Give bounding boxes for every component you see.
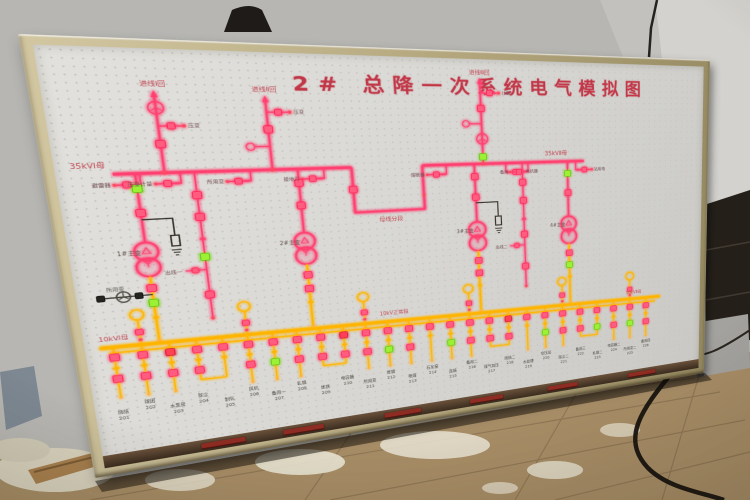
indicator-dot	[138, 338, 143, 341]
indicator-dot	[225, 180, 229, 183]
motor-symbol	[237, 301, 250, 312]
bus-line	[476, 202, 498, 218]
breaker-led	[269, 338, 278, 345]
motor-symbol	[557, 277, 566, 286]
feeder-code: 214	[429, 370, 437, 375]
feeder-code: 224	[611, 348, 617, 353]
breaker-led	[155, 140, 166, 148]
breaker-led	[467, 319, 474, 326]
breaker-led	[192, 346, 202, 354]
equipment-label: 出线二	[495, 244, 508, 250]
breaker-led	[317, 334, 325, 341]
bus-tie-label: 母线分段	[379, 215, 404, 223]
breaker-led	[522, 263, 528, 269]
breaker-led	[304, 271, 313, 278]
breaker-led	[318, 353, 326, 360]
feeder-code: 211	[366, 384, 375, 389]
disconnect-tick	[200, 238, 206, 240]
feeder-label: 电容器二	[607, 342, 620, 348]
indicator-dot	[629, 336, 631, 338]
indicator-dot	[470, 355, 472, 357]
bus-line	[201, 376, 227, 380]
feeder-code: 201	[119, 415, 130, 421]
breaker-led	[168, 369, 178, 377]
feeder-label: 除尘	[198, 392, 209, 399]
breaker-led	[163, 180, 172, 186]
indicator-dot	[525, 285, 528, 288]
feeder-label: 煤气加压	[484, 363, 499, 370]
breaker-led	[340, 331, 348, 338]
motor-symbol	[463, 284, 473, 294]
feeder-label: 球团	[144, 398, 156, 405]
feeder-code: 207	[275, 396, 285, 402]
breaker-led	[564, 170, 570, 176]
photo-of-mimic-board: 2# 总降一次系统电气模拟图 母线分段35kVⅠ母35kVⅡ母进线Ⅰ回压变进线Ⅱ…	[0, 0, 750, 500]
breaker-led	[594, 324, 600, 330]
bus-line	[567, 161, 568, 216]
breaker-led	[271, 358, 280, 365]
breaker-led	[149, 299, 159, 307]
nameplate	[201, 437, 246, 450]
ner-resistor	[495, 216, 501, 225]
equipment-label: 压变计量	[127, 180, 153, 188]
feeder-label: 轧钢	[297, 380, 307, 386]
disconnect-tick	[272, 351, 277, 353]
breaker-led	[447, 321, 454, 328]
indicator-dot	[561, 300, 564, 303]
feeder-label: 连铸	[449, 368, 457, 374]
disconnect-tick	[543, 323, 547, 325]
disconnect-tick	[428, 335, 432, 337]
indicator-dot	[363, 318, 366, 321]
feeder-label: 轧钢二	[593, 350, 603, 356]
disconnect-tick	[468, 330, 472, 332]
breaker-led	[109, 353, 120, 361]
indicator-dot	[497, 92, 500, 95]
breaker-led	[195, 213, 205, 221]
breaker-led	[167, 123, 176, 129]
indicator-dot	[182, 124, 187, 127]
breaker-led	[349, 186, 357, 193]
bus-line	[491, 344, 510, 347]
breaker-led	[141, 372, 151, 380]
indicator-dot	[245, 328, 249, 331]
breaker-led	[567, 262, 573, 268]
disconnect-tick	[244, 180, 250, 182]
indicator-dot	[451, 357, 454, 359]
feeder-label: 除尘二	[558, 354, 568, 360]
breaker-led	[475, 257, 482, 264]
breaker-led	[467, 337, 474, 344]
breaker-led	[293, 336, 302, 343]
disconnect-tick	[364, 341, 369, 343]
transformer-symbol	[295, 246, 317, 264]
breaker-led	[516, 169, 521, 174]
indicator-dot	[545, 346, 547, 348]
indicator-dot	[431, 359, 434, 361]
feeder-label: 水处理	[523, 358, 534, 364]
breaker-led	[96, 296, 105, 303]
indicator-dot	[422, 193, 425, 196]
breaker-led	[246, 361, 255, 369]
bus-line	[109, 291, 655, 366]
breaker-led	[486, 317, 493, 324]
feeder-label: 水泵房	[170, 402, 186, 409]
feeder-code: 210	[344, 380, 353, 385]
breaker-led	[487, 90, 493, 95]
pt-circle	[246, 143, 256, 150]
breaker-led	[566, 250, 572, 256]
nameplate	[548, 382, 578, 392]
equipment-label: 压变	[293, 109, 305, 115]
breaker-led	[577, 325, 583, 331]
equipment-label: 熔断器	[411, 172, 426, 178]
transformer-symbol	[135, 257, 162, 277]
breaker-led	[200, 253, 210, 261]
breaker-led	[309, 176, 316, 182]
breaker-led	[147, 284, 157, 292]
breaker-led	[113, 375, 124, 383]
indicator-dot	[645, 334, 647, 336]
breaker-led	[405, 325, 412, 332]
breaker-led	[235, 178, 243, 184]
feeder-label: 备用三	[576, 346, 586, 352]
indicator-dot	[426, 173, 429, 176]
breaker-led	[611, 322, 616, 328]
incoming-line-label: 进线Ⅲ回	[469, 69, 490, 76]
ground-symbol	[172, 249, 182, 250]
breaker-led	[433, 172, 439, 177]
disconnect-tick	[568, 275, 572, 277]
feeder-label: 制氧	[224, 396, 235, 402]
feeder-code: 205	[225, 402, 235, 408]
breaker-led	[643, 302, 648, 308]
indicator-dot	[410, 362, 413, 364]
breaker-led	[192, 268, 199, 274]
breaker-led	[244, 341, 253, 349]
bus-label: 10kVⅠ母	[98, 333, 129, 343]
bus-line	[323, 363, 346, 366]
disconnect-tick	[595, 317, 599, 319]
breaker-led	[560, 310, 566, 316]
feeder-label: 烧结	[117, 409, 129, 416]
feeder-label: 备用四	[641, 338, 650, 343]
nameplate	[384, 408, 421, 419]
feeder-code: 202	[145, 405, 156, 411]
bus-line	[97, 295, 153, 300]
breaker-led	[192, 191, 202, 199]
feeder-code: 206	[250, 392, 260, 398]
breaker-led	[487, 335, 494, 342]
feeder-code: 219	[525, 364, 532, 369]
feeder-label: 炼铁	[321, 384, 330, 390]
breaker-led	[448, 339, 455, 346]
breaker-led	[472, 194, 479, 201]
feeder-code: 226	[643, 344, 649, 348]
equipment-label: 电抗器	[526, 168, 539, 174]
equipment-label: 所用变	[207, 178, 225, 185]
bus-label: 35kVⅠ母	[69, 162, 106, 171]
nameplate	[470, 394, 503, 405]
breaker-led	[542, 312, 548, 318]
indicator-dot	[591, 168, 593, 170]
feeder-label: 备用二	[466, 359, 478, 365]
feeder-label: 烧结二	[504, 354, 515, 360]
breaker-led	[242, 320, 250, 326]
feeder-code: 223	[594, 355, 600, 360]
disconnect-tick	[561, 321, 565, 323]
bus-line	[142, 218, 175, 237]
feeder-code: 209	[322, 390, 331, 396]
pt-circle	[462, 121, 469, 128]
breaker-led	[627, 320, 632, 326]
indicator-dot	[509, 171, 512, 174]
breaker-led	[264, 126, 273, 133]
indicator-dot	[613, 338, 615, 340]
breaker-led	[362, 329, 370, 336]
disconnect-tick	[319, 346, 324, 348]
breaker-led	[542, 329, 548, 335]
disconnect-tick	[644, 312, 647, 314]
indicator-dot	[300, 375, 303, 378]
breaker-led	[582, 167, 587, 172]
ner-resistor	[171, 235, 181, 246]
breaker-led	[135, 329, 144, 336]
transformer-symbol	[469, 235, 487, 252]
indicator-dot	[276, 378, 279, 381]
breaker-led	[611, 305, 617, 311]
feeder-code: 212	[387, 375, 395, 380]
breaker-led	[364, 348, 372, 355]
breaker-led	[627, 304, 632, 310]
feeder-code: 203	[174, 409, 185, 415]
feeder-label: 电容器	[341, 374, 355, 381]
disconnect-tick	[478, 284, 482, 286]
feeder-code: 216	[469, 365, 477, 370]
equipment-label: 避雷器	[91, 182, 112, 189]
bus-label: 10kV正常段	[380, 308, 410, 317]
breaker-led	[407, 344, 414, 351]
equipment-label: 接地刀	[283, 176, 299, 183]
indicator-dot	[251, 381, 254, 384]
indicator-dot	[562, 344, 564, 346]
indicator-dot	[527, 348, 529, 350]
disconnect-tick	[578, 319, 582, 321]
disconnect-tick	[141, 364, 147, 367]
transformer-symbol	[561, 228, 576, 244]
disconnect-tick	[386, 339, 391, 341]
incoming-line-label: 进线Ⅰ回	[138, 79, 165, 87]
nameplate	[283, 424, 324, 436]
disconnect-tick	[296, 348, 301, 350]
breaker-led	[361, 310, 367, 316]
transformer-label: 4#主变	[550, 222, 566, 228]
indicator-dot	[481, 162, 485, 166]
disconnect-tick	[247, 353, 252, 355]
indicator-dot	[112, 184, 116, 187]
bus-label: 35kVⅡ母	[545, 150, 568, 157]
breaker-led	[305, 285, 314, 292]
equipment-label: 备用	[500, 169, 509, 175]
feeder-label: 石灰窑	[426, 364, 438, 370]
breaker-led	[560, 327, 566, 333]
feeder-code: 225	[627, 351, 633, 355]
breaker-led	[477, 105, 484, 112]
indicator-dot	[174, 390, 178, 393]
breaker-led	[295, 355, 304, 362]
incoming-line-label: 进线Ⅱ回	[251, 85, 277, 93]
lit-circuits	[54, 69, 662, 413]
breaker-led	[138, 351, 148, 359]
breaker-led	[195, 366, 205, 374]
bus-line	[474, 164, 477, 222]
breaker-led	[565, 190, 571, 196]
breaker-led	[471, 173, 478, 180]
breaker-led	[560, 293, 565, 298]
breaker-led	[135, 209, 146, 217]
breaker-led	[274, 109, 282, 115]
breaker-led	[480, 154, 487, 160]
indicator-dot	[154, 182, 158, 185]
breaker-led	[384, 327, 392, 334]
bus-line	[580, 334, 597, 337]
breaker-led	[135, 292, 144, 298]
disconnect-tick	[507, 326, 511, 328]
feeder-label: 所用变	[363, 378, 376, 385]
breaker-led	[218, 343, 227, 351]
disconnect-tick	[488, 328, 492, 330]
nameplate	[628, 369, 655, 378]
indicator-dot	[119, 396, 123, 399]
breaker-led	[165, 348, 175, 356]
motor-symbol	[357, 292, 369, 302]
feeder-code: 221	[560, 360, 567, 365]
breaker-led	[521, 231, 527, 237]
indicator-dot	[270, 168, 275, 172]
disconnect-tick	[441, 173, 446, 175]
indicator-dot	[368, 367, 371, 370]
bus-line	[113, 167, 352, 174]
breaker-led	[297, 202, 306, 209]
disconnect-tick	[196, 358, 202, 360]
equipment-label: 计量	[502, 90, 511, 96]
feeder-label: 风机	[249, 386, 259, 392]
feeder-label: 喷煤	[408, 373, 416, 379]
feeder-label: 备用一	[271, 389, 286, 396]
motor-symbol	[129, 309, 144, 321]
feeder-code: 218	[507, 360, 514, 365]
disconnect-tick	[318, 177, 323, 179]
disconnect-tick	[628, 314, 631, 316]
breaker-led	[506, 333, 512, 339]
disconnect-tick	[612, 316, 615, 318]
indicator-dot	[288, 111, 292, 114]
indicator-dot	[162, 171, 168, 175]
breaker-led	[426, 323, 433, 330]
disconnect-tick	[522, 218, 526, 220]
feeder-code: 213	[409, 379, 417, 384]
breaker-led	[205, 291, 215, 299]
bus-line	[265, 100, 272, 170]
disconnect-tick	[407, 337, 412, 339]
indicator-dot	[147, 393, 151, 396]
bus-line	[480, 82, 484, 164]
equipment-label: 站用电	[594, 166, 605, 172]
breaker-led	[385, 346, 393, 353]
motor-symbol	[626, 272, 634, 281]
disconnect-tick	[577, 169, 581, 171]
feeder-label: 炼钢	[387, 369, 396, 375]
disconnect-tick	[448, 332, 452, 334]
breaker-led	[577, 309, 583, 315]
feeder-code: 215	[449, 374, 457, 379]
breaker-led	[594, 307, 600, 313]
feeder-code: 222	[578, 352, 585, 357]
indicator-dot	[389, 364, 392, 367]
indicator-dot	[211, 316, 215, 319]
breaker-led	[524, 314, 530, 320]
breaker-led	[515, 243, 520, 248]
feeder-code: 220	[543, 356, 550, 361]
feeder-code: 217	[488, 369, 495, 374]
disconnect-tick	[342, 343, 347, 345]
disconnect-tick	[174, 182, 180, 184]
disconnect-tick	[113, 367, 119, 370]
disconnect-tick	[525, 325, 529, 327]
breaker-led	[519, 179, 526, 185]
feeder-label: 所用变二	[624, 345, 637, 351]
indicator-dot	[468, 308, 471, 311]
feeder-code: 208	[298, 386, 307, 392]
disconnect-tick	[308, 301, 313, 303]
breaker-led	[341, 351, 349, 358]
breaker-led	[466, 301, 472, 306]
feeder-code: 204	[199, 398, 209, 404]
disconnect-tick	[222, 356, 228, 358]
breaker-led	[505, 315, 511, 321]
breaker-led	[520, 197, 527, 203]
disconnect-tick	[169, 361, 175, 364]
equipment-label: 出线一	[164, 268, 183, 276]
equipment-label: 压变	[188, 122, 201, 129]
disconnect-tick	[153, 316, 159, 318]
breaker-led	[643, 318, 648, 324]
breaker-led	[476, 270, 483, 277]
feeder-label: 空压站	[541, 350, 552, 356]
